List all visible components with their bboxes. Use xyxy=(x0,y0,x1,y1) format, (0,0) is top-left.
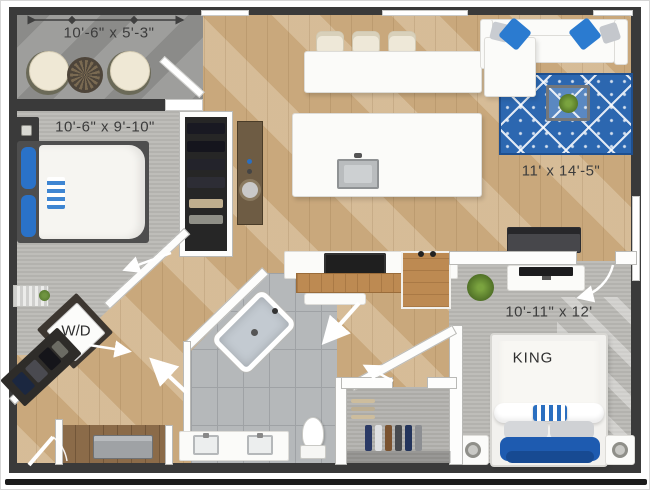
kitchen-island xyxy=(292,113,482,197)
wall-closet-top-right xyxy=(427,377,457,389)
window-living-top xyxy=(593,10,633,16)
shower-head xyxy=(272,308,278,314)
wall-bath-left xyxy=(183,341,191,435)
bedroom-2-dimension-label: 10'-6" x 9'-10" xyxy=(55,119,155,136)
closet-shoe-shelf-3 xyxy=(351,415,375,419)
balcony-table xyxy=(67,57,103,93)
media-console-living xyxy=(507,227,581,253)
closet-hall-clothes-5 xyxy=(189,199,223,208)
balcony-slider-door xyxy=(165,99,203,111)
lamp-bedroom-2 xyxy=(21,125,32,136)
lamp-1-right xyxy=(612,442,628,458)
balcony-chair-1-cushion xyxy=(29,51,69,91)
bed-1-pillow-striped xyxy=(533,405,567,421)
hall-shelf-plant xyxy=(39,290,50,301)
entry-console-table xyxy=(93,435,153,459)
floorplan-canvas: 10'-6" x 5'-3" 10'-6" x 9'-10" 11' x 14'… xyxy=(0,0,650,490)
tv-stand xyxy=(542,276,551,280)
closet-hall-clothes-3 xyxy=(187,159,225,170)
wall-closet-top-left xyxy=(341,377,393,389)
balcony-chair-2-cushion xyxy=(110,51,150,91)
window-kitchen-2 xyxy=(382,10,468,16)
bar-faucet-2 xyxy=(430,251,436,257)
counter-return-cabinet xyxy=(401,251,451,309)
wall-entry-left xyxy=(55,419,63,465)
king-bed-label: KING xyxy=(513,350,554,367)
counter-cabinet-front xyxy=(296,273,402,293)
bed-2-pillow-blue-2 xyxy=(21,195,36,237)
laundry-label: W/D xyxy=(61,323,90,340)
closet-garment-4 xyxy=(395,425,402,451)
closet-hall-clothes-4 xyxy=(187,177,225,188)
utility-dot-2 xyxy=(247,169,252,174)
vanity-sink-2 xyxy=(247,435,273,455)
closet-garment-3 xyxy=(385,425,392,451)
bed-1-pillow-blue-row-2 xyxy=(506,451,594,463)
island-faucet xyxy=(354,153,362,158)
closet-garment-1 xyxy=(365,425,372,451)
wall-entry-right xyxy=(165,425,173,465)
bathtub-drain xyxy=(251,329,258,336)
tv-bedroom-1 xyxy=(519,267,573,276)
wall-divider-b xyxy=(615,251,637,265)
baseline-bar xyxy=(5,479,647,485)
lamp-1-left xyxy=(465,442,481,458)
closet-shoe-shelf-1 xyxy=(351,399,375,403)
bed-2-pillow-blue-1 xyxy=(21,147,36,189)
bar-faucet-1 xyxy=(418,251,424,257)
kitchen-breakfast-bar xyxy=(304,51,482,93)
balcony-wall xyxy=(15,99,165,111)
closet-garment-2 xyxy=(375,425,382,451)
closet-garment-5 xyxy=(405,425,412,451)
bedroom-1-dimension-label: 10'-11" x 12' xyxy=(505,304,592,321)
bed-2-throw-striped xyxy=(47,177,65,209)
wall-divider-a xyxy=(449,251,577,265)
window-kitchen-1 xyxy=(201,10,249,16)
closet-garment-6 xyxy=(415,425,422,451)
vanity-faucet-2 xyxy=(257,433,263,438)
cooktop xyxy=(324,253,386,275)
window-living-right xyxy=(632,196,640,281)
closet-hall-clothes-6 xyxy=(189,215,223,224)
balcony-dimension-label: 10'-6" x 5'-3" xyxy=(64,25,155,42)
water-heater xyxy=(239,179,261,201)
living-dimension-label: 11' x 14'-5" xyxy=(522,163,600,180)
coffee-table-plant xyxy=(559,94,578,113)
vanity-sink-1 xyxy=(193,435,219,455)
closet-hall-clothes-1 xyxy=(187,123,225,134)
wall-top xyxy=(9,7,641,15)
counter-lower-cabinets xyxy=(304,293,366,305)
utility-dot-1 xyxy=(247,159,252,164)
toilet-tank xyxy=(300,445,326,459)
closet-hall-clothes-2 xyxy=(187,141,225,152)
wall-bath-closet-divider xyxy=(335,377,347,465)
closet-shoe-shelf-2 xyxy=(351,407,375,411)
wall-bedroom-1-left xyxy=(449,325,463,465)
closet-floor-reflection xyxy=(347,451,451,463)
island-sink-basin xyxy=(344,165,372,183)
bedroom-1-plant xyxy=(467,274,494,301)
vanity-faucet-1 xyxy=(203,433,209,438)
